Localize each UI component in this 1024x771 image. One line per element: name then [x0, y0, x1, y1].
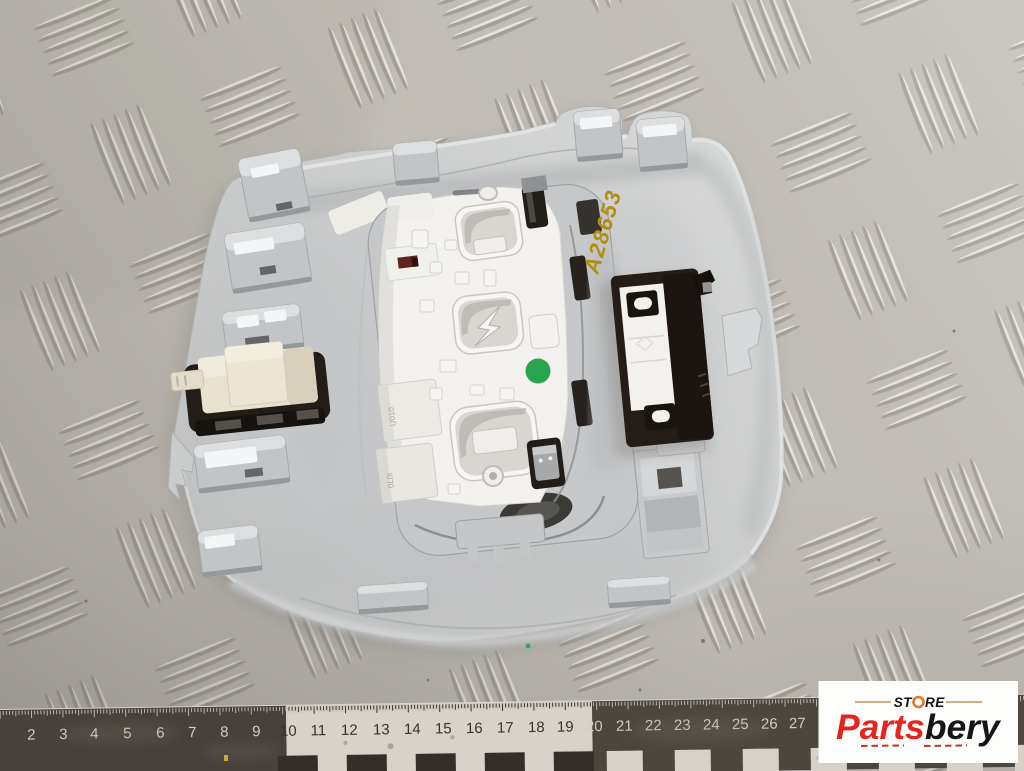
svg-text:8: 8	[220, 724, 229, 741]
svg-text:9: 9	[252, 723, 261, 740]
svg-text:16: 16	[466, 720, 483, 737]
svg-text:0L0I: 0L0I	[385, 472, 396, 489]
svg-text:2: 2	[27, 726, 36, 743]
svg-text:13: 13	[373, 721, 390, 738]
svg-text:27: 27	[789, 715, 806, 732]
svg-text:14: 14	[404, 721, 421, 738]
svg-text:10: 10	[280, 723, 297, 740]
svg-text:11: 11	[310, 722, 326, 739]
svg-text:20: 20	[586, 718, 603, 735]
svg-text:19: 19	[557, 718, 574, 735]
svg-text:17: 17	[497, 719, 514, 736]
svg-text:12: 12	[341, 722, 358, 739]
svg-text:7: 7	[188, 724, 197, 741]
svg-text:18: 18	[528, 719, 545, 736]
svg-text:Partsbery: Partsbery	[836, 707, 1002, 747]
svg-text:21: 21	[616, 718, 633, 735]
svg-text:15: 15	[435, 720, 452, 737]
